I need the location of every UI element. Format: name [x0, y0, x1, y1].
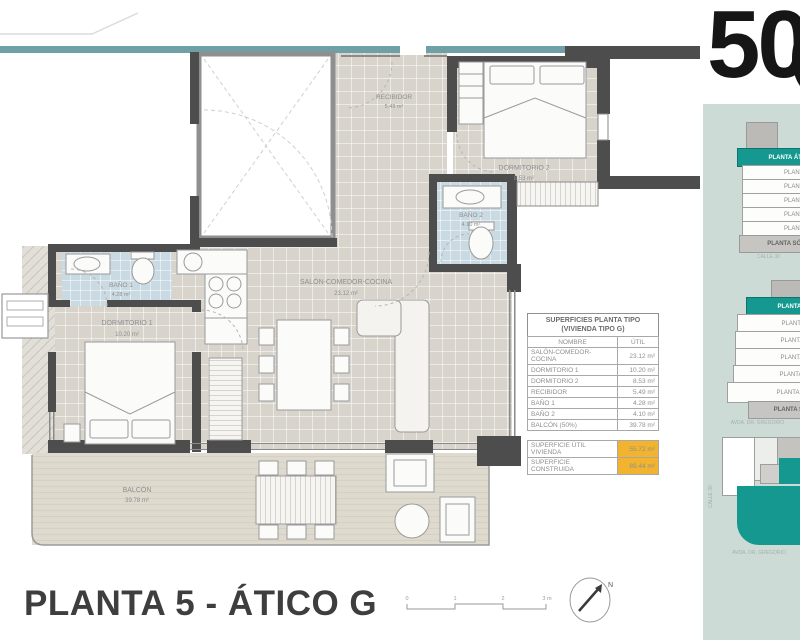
floor-plan-drawing: RECIBIDOR 5.49 m² DORMITORIO 2 8.53 m² B… — [0, 0, 700, 560]
row-value: 23.12 m² — [618, 348, 659, 365]
table-row: BAÑO 14.28 m² — [528, 398, 659, 409]
row-value: 39.78 m² — [618, 420, 659, 431]
table-row: BALCÓN (50%)39.78 m² — [528, 420, 659, 431]
entrance-door-gap — [400, 44, 426, 55]
summary-grid: SUPERFICIE ÚTIL VIVIENDA 55.72 m² SUPERF… — [527, 440, 659, 475]
room-label: BALCÓN — [123, 485, 152, 494]
room-area: 8.53 m² — [514, 176, 534, 182]
row-name: BAÑO 1 — [528, 398, 618, 409]
svg-text:2: 2 — [501, 596, 504, 602]
siteplan-street-bottom: AVDA. DR. GREGORIO — [718, 550, 800, 556]
areas-table-title-line1: SUPERFICIES PLANTA TIPO — [528, 316, 658, 325]
room-label: BAÑO 1 — [109, 280, 133, 289]
summary-row: SUPERFICIE CONSTRUIDA 89.44 m² — [528, 458, 659, 475]
room-label: DORMITORIO 1 — [101, 320, 152, 327]
stair-core — [199, 54, 333, 238]
summary-label: SUPERFICIE ÚTIL VIVIENDA — [528, 441, 618, 458]
summary-label: SUPERFICIE CONSTRUIDA — [528, 458, 618, 475]
room-label: RECIBIDOR — [376, 94, 412, 101]
room-areas-grid: NOMBRE ÚTIL SALÓN-COMEDOR-COCINA23.12 m²… — [527, 336, 659, 431]
page: RECIBIDOR 5.49 m² DORMITORIO 2 8.53 m² B… — [0, 0, 800, 640]
window-dormitorio2 — [598, 114, 608, 140]
row-value: 8.53 m² — [618, 376, 659, 387]
room-area: 23.12 m² — [334, 291, 358, 297]
table-row: BAÑO 24.10 m² — [528, 409, 659, 420]
col-util: ÚTIL — [618, 337, 659, 348]
row-name: DORMITORIO 2 — [528, 376, 618, 387]
stack2-roof-box — [771, 280, 800, 298]
row-name: SALÓN-COMEDOR-COCINA — [528, 348, 618, 365]
areas-table: SUPERFICIES PLANTA TIPO (VIVIENDA TIPO G… — [527, 313, 659, 475]
svg-text:3 m: 3 m — [542, 596, 552, 602]
areas-table-title: SUPERFICIES PLANTA TIPO (VIVIENDA TIPO G… — [527, 313, 659, 337]
row-value: 4.10 m² — [618, 409, 659, 420]
stack2-floor: PLANTA — [727, 382, 800, 403]
row-value: 5.49 m² — [618, 387, 659, 398]
svg-text:1: 1 — [453, 596, 456, 602]
room-area: 5.49 m² — [385, 104, 404, 110]
table-row: RECIBIDOR5.49 m² — [528, 387, 659, 398]
row-value: 4.28 m² — [618, 398, 659, 409]
table-row: SALÓN-COMEDOR-COCINA23.12 m² — [528, 348, 659, 365]
unit-big-number: 50 — [707, 0, 800, 100]
siteplan-street-side: CALLE 30 — [708, 485, 714, 508]
room-label: SALÓN-COMEDOR-COCINA — [300, 277, 393, 286]
room-label: BAÑO 2 — [459, 210, 483, 219]
north-arrow — [579, 587, 600, 611]
north-compass: N — [566, 574, 618, 626]
row-name: BALCÓN (50%) — [528, 420, 618, 431]
room-area: 4.10 m² — [462, 222, 481, 228]
scale-bar-line — [407, 604, 546, 609]
neighbour-outline — [0, 13, 138, 34]
stack1-floor-sotano: PLANTA SÓTANO — [739, 235, 800, 253]
siteplan-highlight-building — [737, 486, 800, 545]
scale-bar: 0 1 2 3 m — [403, 592, 563, 616]
svg-text:0: 0 — [405, 596, 408, 602]
summary-value-highlight: 55.72 m² — [618, 441, 659, 458]
stack1-roof-box — [746, 122, 778, 150]
row-name: RECIBIDOR — [528, 387, 618, 398]
areas-table-title-line2: (VIVIENDA TIPO G) — [528, 325, 658, 334]
stack2-floor-sotano: PLANTA SÓTANO — [748, 401, 800, 419]
stack2-street: AVDA. DR. GREGORIO — [715, 420, 800, 426]
table-header-row: NOMBRE ÚTIL — [528, 337, 659, 348]
page-title: PLANTA 5 - ÁTICO G — [24, 584, 377, 624]
room-area: 39.78 m² — [125, 498, 149, 504]
scale-labels: 0 1 2 3 m — [405, 596, 552, 602]
wardrobe-hatch — [517, 182, 598, 206]
table-row: DORMITORIO 110.20 m² — [528, 365, 659, 376]
stack1-street: CALLE 30 — [737, 254, 800, 260]
north-label: N — [608, 582, 613, 589]
row-name: DORMITORIO 1 — [528, 365, 618, 376]
col-nombre: NOMBRE — [528, 337, 618, 348]
room-area: 10.20 m² — [115, 332, 139, 338]
summary-value-highlight: 89.44 m² — [618, 458, 659, 475]
row-name: BAÑO 2 — [528, 409, 618, 420]
table-row: DORMITORIO 28.53 m² — [528, 376, 659, 387]
room-area: 4.28 m² — [112, 292, 131, 298]
room-label: DORMITORIO 2 — [498, 165, 549, 172]
siteplan-highlight-small — [779, 458, 800, 484]
left-window-unit — [2, 294, 48, 338]
row-value: 10.20 m² — [618, 365, 659, 376]
summary-row: SUPERFICIE ÚTIL VIVIENDA 55.72 m² — [528, 441, 659, 458]
